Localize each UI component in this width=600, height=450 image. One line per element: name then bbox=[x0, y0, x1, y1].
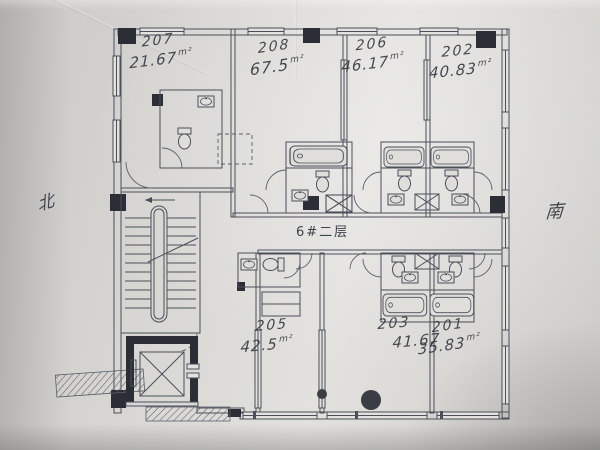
toilet-icon bbox=[398, 170, 411, 191]
sink-icon bbox=[452, 194, 468, 205]
staircase bbox=[121, 192, 200, 351]
bathtub-icon bbox=[430, 294, 474, 316]
hatch-areas bbox=[55, 369, 230, 421]
shaft-icon bbox=[326, 195, 352, 212]
toilet-icon bbox=[316, 171, 329, 192]
sink-icon bbox=[438, 272, 454, 283]
floor-plan-photo: 207 21.67m² 208 67.5m² 206 46.17m² 202 4… bbox=[0, 0, 600, 450]
bathtub-icon bbox=[383, 294, 427, 316]
sink-icon bbox=[241, 259, 257, 270]
columns bbox=[110, 28, 505, 417]
toilet-icon bbox=[178, 128, 191, 149]
floor-plan-drawing bbox=[0, 0, 600, 450]
sink-icon bbox=[388, 194, 404, 205]
shaft-icon bbox=[415, 253, 439, 269]
toilet-icon bbox=[263, 258, 284, 271]
round-columns bbox=[317, 389, 381, 410]
toilet-icon bbox=[445, 170, 458, 191]
sink-icon bbox=[292, 190, 308, 201]
walls bbox=[114, 29, 509, 419]
sink-icon bbox=[402, 272, 418, 283]
bathtub-icon bbox=[431, 147, 471, 167]
stair-direction-arrow bbox=[145, 197, 152, 203]
shaft-icon bbox=[415, 194, 439, 210]
windows bbox=[113, 28, 509, 419]
bathtub-icon bbox=[384, 147, 424, 167]
sink-icon bbox=[198, 96, 214, 107]
bathtub-icon bbox=[290, 146, 347, 166]
